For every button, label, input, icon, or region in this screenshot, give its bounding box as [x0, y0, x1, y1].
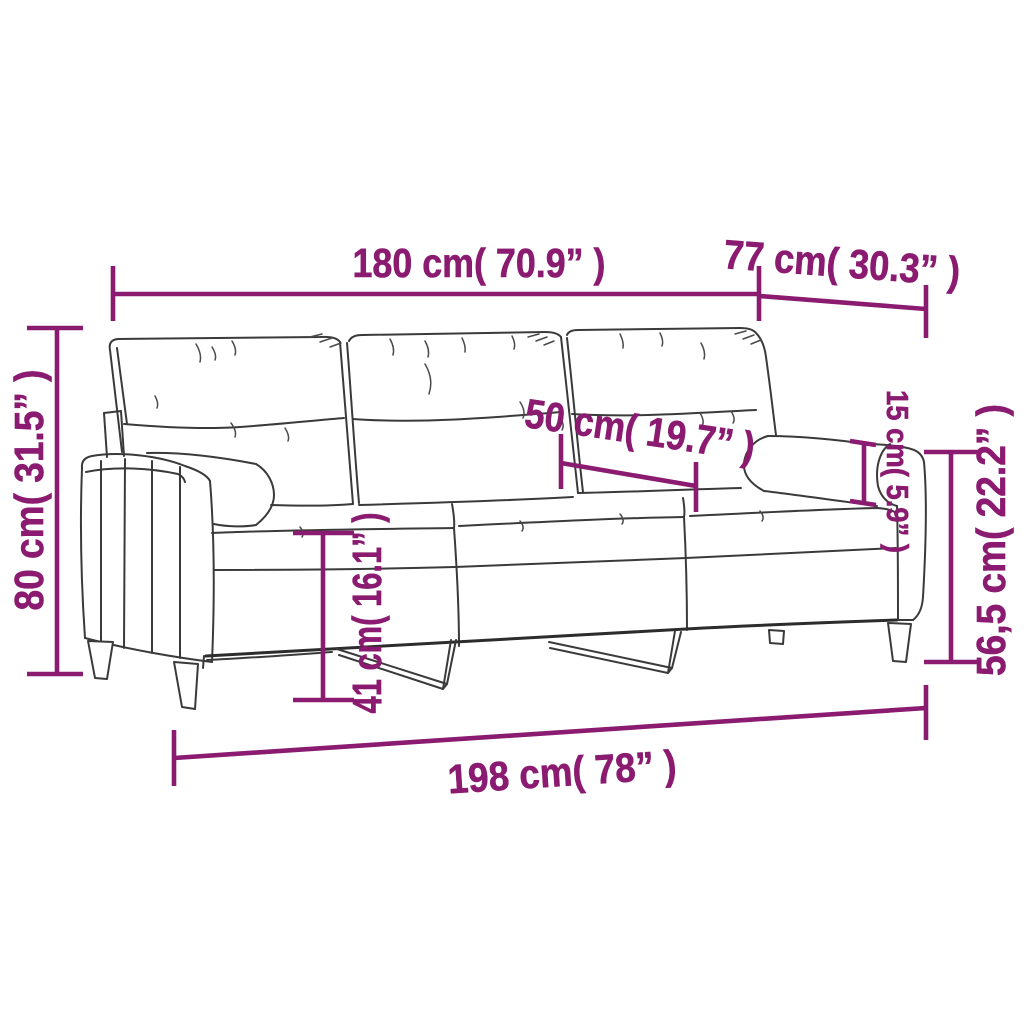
svg-text:41 cm( 16.1” ): 41 cm( 16.1” ): [344, 513, 390, 714]
svg-text:80 cm( 31.5” ): 80 cm( 31.5” ): [6, 370, 52, 611]
svg-text:15 cm( 5.9” ): 15 cm( 5.9” ): [880, 390, 915, 553]
svg-text:56,5 cm( 22.2” ): 56,5 cm( 22.2” ): [968, 404, 1014, 676]
svg-text:180 cm( 70.9” ): 180 cm( 70.9” ): [353, 240, 606, 286]
